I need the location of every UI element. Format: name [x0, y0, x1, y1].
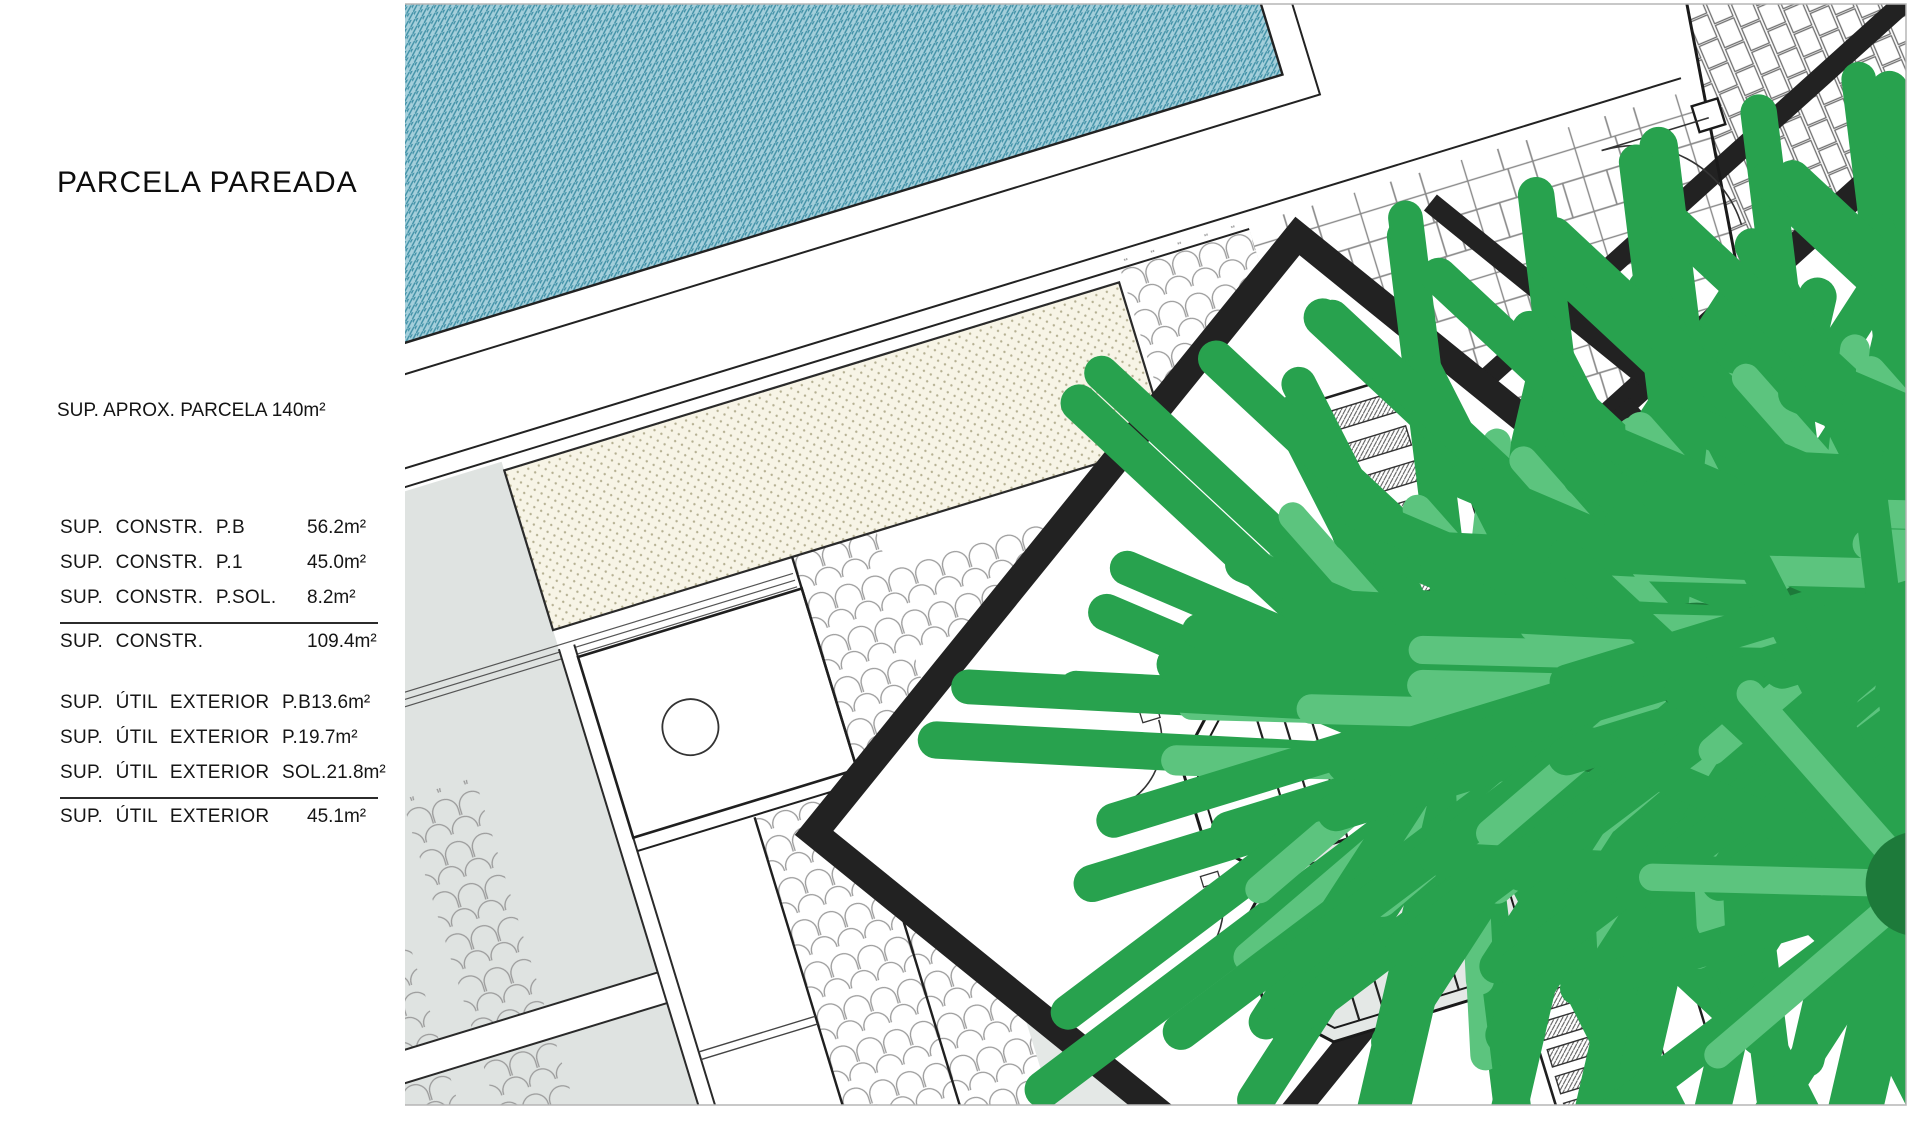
row-value: 8.2m²: [307, 587, 356, 609]
legend-panel: PARCELA PAREADA SUP. APROX. PARCELA 140m…: [0, 0, 405, 1141]
table-row-total: SUP. CONSTR. 109.4m²: [60, 622, 378, 666]
row-label: SUP. CONSTR. P.B: [60, 517, 307, 539]
constructed-area-table: SUP. CONSTR. P.B 56.2m² SUP. CONSTR. P.1…: [60, 517, 378, 666]
row-value: 21.8m²: [327, 762, 386, 784]
architectural-site-plan-sheet: PARCELA PAREADA SUP. APROX. PARCELA 140m…: [0, 0, 1920, 1141]
row-label: SUP. CONSTR. P.1: [60, 552, 307, 574]
table-row: SUP. ÚTIL EXTERIOR P.1 9.7m²: [60, 727, 378, 762]
row-value: 45.0m²: [307, 552, 366, 574]
row-label: SUP. ÚTIL EXTERIOR SOL.: [60, 762, 327, 784]
table-row: SUP. CONSTR. P.SOL. 8.2m²: [60, 587, 378, 622]
row-value: 109.4m²: [307, 631, 377, 653]
row-label: SUP. ÚTIL EXTERIOR P.1: [60, 727, 309, 749]
table-row: SUP. CONSTR. P.B 56.2m²: [60, 517, 378, 552]
table-row: SUP. CONSTR. P.1 45.0m²: [60, 552, 378, 587]
row-label: SUP. ÚTIL EXTERIOR P.B: [60, 692, 311, 714]
plan-title: PARCELA PAREADA: [57, 166, 358, 200]
plot-area-note: SUP. APROX. PARCELA 140m²: [57, 400, 326, 422]
row-label: SUP. ÚTIL EXTERIOR: [60, 806, 307, 828]
row-value: 13.6m²: [311, 692, 370, 714]
row-value: 56.2m²: [307, 517, 366, 539]
table-row: SUP. ÚTIL EXTERIOR P.B 13.6m²: [60, 692, 378, 727]
table-row: SUP. ÚTIL EXTERIOR SOL. 21.8m²: [60, 762, 378, 797]
row-value: 9.7m²: [309, 727, 358, 749]
row-value: 45.1m²: [307, 806, 366, 828]
row-label: SUP. CONSTR. P.SOL.: [60, 587, 307, 609]
row-label: SUP. CONSTR.: [60, 631, 307, 653]
exterior-area-table: SUP. ÚTIL EXTERIOR P.B 13.6m² SUP. ÚTIL …: [60, 692, 378, 841]
table-row-total: SUP. ÚTIL EXTERIOR 45.1m²: [60, 797, 378, 841]
